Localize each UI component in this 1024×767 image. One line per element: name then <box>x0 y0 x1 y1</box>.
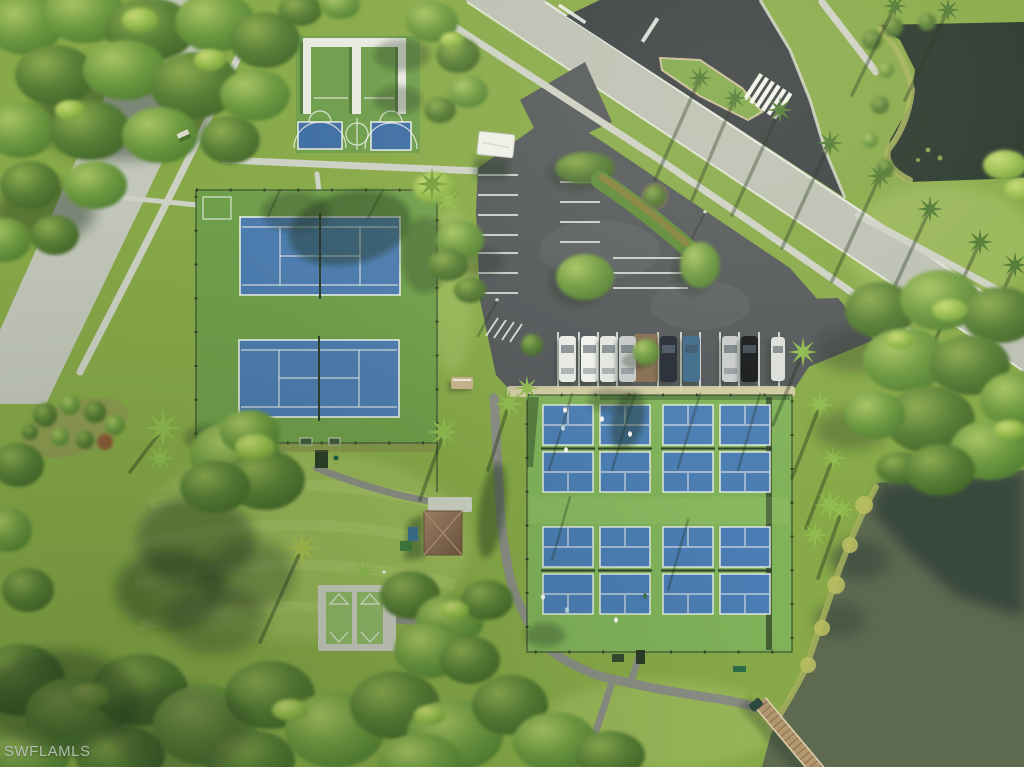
corner-shade-grade <box>0 0 1024 767</box>
watermark: SWFLAMLS <box>4 743 91 760</box>
aerial-photo-community-sports-complex: SWFLAMLS <box>0 0 1024 767</box>
scene-canvas <box>0 0 1024 767</box>
